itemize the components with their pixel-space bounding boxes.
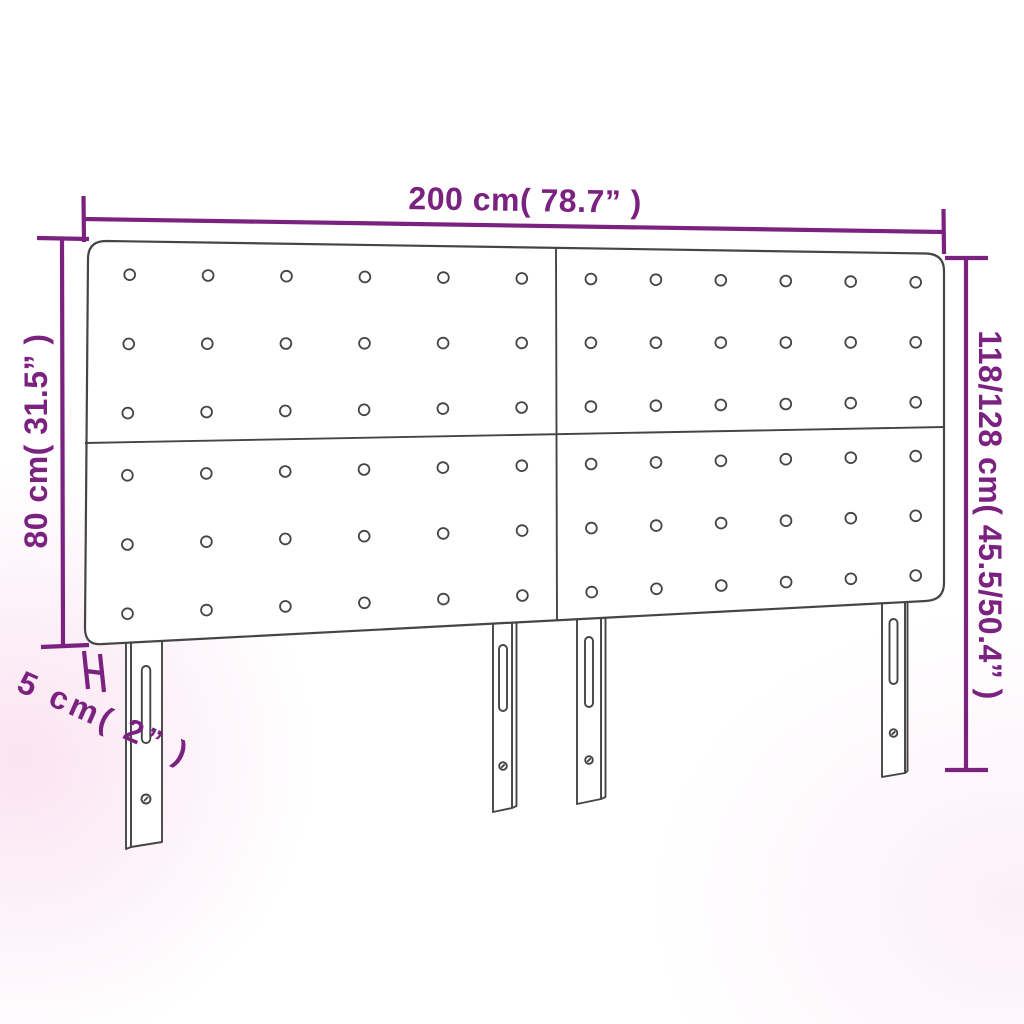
tufting-button <box>651 274 662 285</box>
panel-height-dimension: 80 cm( 31.5” ) <box>18 238 89 647</box>
tufting-button <box>651 400 662 411</box>
tufting-button <box>201 468 212 479</box>
tufting-button <box>122 470 133 481</box>
panel-height-top-tick <box>37 238 89 239</box>
tufting-button <box>280 406 291 417</box>
tufting-button <box>438 338 449 349</box>
tufting-button <box>438 403 449 414</box>
tufting-button <box>910 451 921 462</box>
tufting-button <box>281 271 292 282</box>
tufting-button <box>586 587 597 598</box>
tufting-button <box>360 272 371 283</box>
panel-height-dimension-label: 80 cm( 31.5” ) <box>18 333 54 548</box>
tufting-button <box>516 273 527 284</box>
tufting-button <box>359 338 370 349</box>
total-height-dimension: 118/128 cm( 45.5/50.4” ) <box>945 258 1008 770</box>
tufting-button <box>910 397 921 408</box>
tufting-button <box>846 573 857 584</box>
tufting-button <box>281 338 292 349</box>
tufting-button <box>781 577 792 588</box>
tufting-button <box>203 270 214 281</box>
tufting-button <box>201 407 212 418</box>
headboard-outline <box>85 241 944 644</box>
total-height-dimension-label: 118/128 cm( 45.5/50.4” ) <box>972 330 1008 700</box>
tufting-button <box>716 580 727 591</box>
tufting-button <box>910 570 921 581</box>
tufting-button <box>438 272 449 283</box>
tufting-button <box>845 398 856 409</box>
tufting-button <box>201 536 212 547</box>
tufting-button <box>845 513 856 524</box>
panel-height-dimension-line <box>62 239 63 646</box>
tufting-button <box>586 337 597 348</box>
tufting-button <box>716 455 727 466</box>
tufting-button <box>122 408 133 419</box>
headboard-dimension-diagram: 200 cm( 78.7” ) 80 cm( 31.5” ) 118/128 c… <box>0 0 1024 1024</box>
tufting-button <box>438 528 449 539</box>
tufting-button <box>517 590 528 601</box>
width-dimension-right-tick <box>944 209 945 254</box>
tufting-button <box>122 608 133 619</box>
tufting-button <box>359 597 370 608</box>
tufting-button <box>845 452 856 463</box>
tufting-button <box>780 399 791 410</box>
tufting-button <box>122 539 133 550</box>
tufting-button <box>586 274 597 285</box>
leg-front-face <box>882 588 905 777</box>
tufting-button <box>845 276 856 287</box>
tufting-button <box>202 338 213 349</box>
tufting-button <box>910 510 921 521</box>
tufting-button <box>359 404 370 415</box>
tufting-button <box>517 525 528 536</box>
tufting-button <box>780 454 791 465</box>
tufting-button <box>280 466 291 477</box>
tufting-button <box>586 459 597 470</box>
tufting-button <box>359 464 370 475</box>
tufting-button <box>280 534 291 545</box>
tufting-button <box>651 520 662 531</box>
tufting-button <box>715 337 726 348</box>
width-dimension-label: 200 cm( 78.7” ) <box>408 180 642 220</box>
depth-dimension: 5 cm( 2” ) <box>12 651 196 772</box>
tufting-button <box>715 275 726 286</box>
tufting-button <box>124 269 135 280</box>
tufting-button <box>438 462 449 473</box>
width-dimension-left-tick <box>84 196 85 242</box>
tufting-button <box>651 583 662 594</box>
tufting-button <box>586 523 597 534</box>
leg-front-face <box>577 604 601 804</box>
panel-height-bottom-tick <box>41 645 89 647</box>
tufting-button <box>123 339 134 350</box>
depth-bracket-crossbar <box>86 671 102 673</box>
tufting-button <box>781 515 792 526</box>
width-dimension-line <box>83 219 944 232</box>
tufting-button <box>910 337 921 348</box>
tufting-button <box>438 594 449 605</box>
tufting-button <box>716 518 727 529</box>
tufting-button <box>780 337 791 348</box>
tufting-button <box>516 460 527 471</box>
tufting-button <box>780 276 791 287</box>
tufting-button <box>715 400 726 411</box>
tufting-button <box>845 337 856 348</box>
tufting-button <box>651 457 662 468</box>
tufting-button <box>280 601 291 612</box>
diagram-canvas: 200 cm( 78.7” ) 80 cm( 31.5” ) 118/128 c… <box>0 0 1024 1024</box>
tufting-button <box>910 277 921 288</box>
tufting-button <box>516 338 527 349</box>
headboard-body <box>85 241 944 644</box>
tufting-button <box>516 402 527 413</box>
tufting-button <box>201 605 212 616</box>
tufting-button <box>586 401 597 412</box>
tufting-button <box>359 531 370 542</box>
tufting-button <box>651 337 662 348</box>
